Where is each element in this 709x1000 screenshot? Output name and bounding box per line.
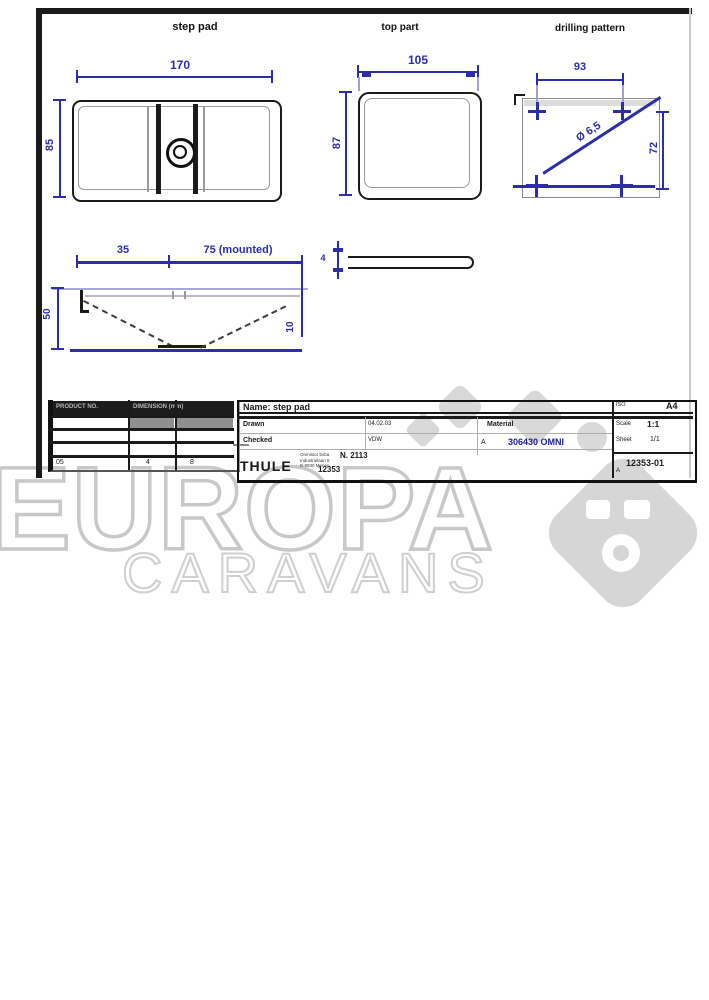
name-value: VDW	[368, 437, 382, 443]
dim-line	[301, 257, 303, 337]
dim-tick	[76, 70, 78, 83]
dim-line	[662, 112, 664, 190]
section-inner-line	[85, 295, 300, 297]
table-rule	[48, 428, 234, 431]
dim-line	[57, 288, 59, 350]
dim-tick	[339, 194, 352, 196]
dim-arrow	[466, 73, 475, 77]
view-top-label: top part	[355, 22, 445, 33]
section-hidden-line	[200, 305, 286, 348]
dim-height-main: 85	[44, 125, 56, 165]
title-divider-light	[365, 417, 366, 449]
dim-line	[337, 241, 339, 279]
dim-line	[70, 349, 302, 352]
section-tick	[184, 291, 186, 299]
parts-table-subcell	[130, 418, 174, 428]
dim-tick	[656, 188, 669, 190]
drawn-label: Drawn	[243, 421, 264, 428]
dim-line	[59, 100, 61, 198]
corner-mark	[514, 94, 516, 105]
dim-line	[358, 71, 478, 73]
part-number: 306430 OMNI	[508, 437, 564, 447]
dim-arrow	[362, 73, 371, 77]
dim-tick	[656, 111, 669, 113]
dim-tick	[271, 70, 273, 83]
table-rule	[48, 416, 234, 418]
dim-tick	[168, 255, 170, 268]
title-rule	[237, 412, 693, 414]
dim-line	[77, 261, 303, 264]
dim-arrow	[333, 248, 343, 252]
dim-section-right: 75 (mounted)	[178, 244, 298, 256]
part-inner-line	[364, 98, 470, 188]
groove-line	[203, 106, 205, 192]
drawing-page: EUROPA CARAVANS step pad 170	[0, 0, 709, 1000]
code-bottom: 12353	[318, 465, 340, 474]
ext-line	[358, 77, 360, 91]
dim-tick	[53, 196, 66, 198]
grommet-inner	[173, 145, 187, 159]
hole-cross	[536, 102, 539, 120]
title-block-name: Name: step pad	[243, 402, 310, 412]
table-rule	[48, 441, 234, 444]
dim-line	[513, 185, 655, 188]
title-rule	[237, 416, 693, 419]
part-prefix: A	[481, 439, 486, 446]
view-drill-label: drilling pattern	[538, 23, 642, 34]
dim-line	[77, 76, 273, 78]
checked-label: Checked	[243, 437, 272, 444]
sheet-border-left	[36, 8, 42, 478]
dim-thickness: 4	[316, 253, 330, 263]
groove-bar	[156, 104, 161, 194]
dim-tick	[51, 348, 64, 350]
dim-tick	[51, 287, 64, 289]
dim-tick	[53, 99, 66, 101]
title-divider-light	[477, 417, 478, 455]
drill-outline	[522, 98, 660, 198]
brand-logo: THULE	[240, 458, 292, 474]
standard-label: ISO	[616, 402, 625, 408]
scale-label: Scale	[616, 421, 631, 427]
title-rule	[612, 452, 693, 454]
section-edge	[80, 310, 89, 313]
sheet: step pad 170 85 top part 105 87	[0, 0, 709, 1000]
table-rule	[48, 455, 234, 458]
dim-tick	[339, 91, 352, 93]
dim-section-height: 50	[42, 296, 53, 332]
dim-arrow	[333, 268, 343, 272]
dim-height-drill: 72	[648, 128, 660, 168]
dim-line	[345, 92, 347, 196]
address-line: Omnistor bvba	[300, 452, 330, 458]
table-cell-value: 05	[56, 459, 64, 466]
table-divider	[175, 400, 177, 470]
table-cell-value: 4	[146, 459, 150, 466]
title-divider	[612, 400, 614, 478]
thin-profile-outline	[348, 256, 474, 269]
dim-tick	[76, 255, 78, 268]
dim-width-main: 170	[150, 58, 210, 72]
section-tick	[172, 291, 174, 299]
dim-line	[537, 79, 623, 81]
sheet-label: Sheet	[616, 437, 632, 443]
title-rule-light	[239, 433, 612, 434]
table-divider	[128, 400, 130, 470]
dim-width-drill: 93	[550, 61, 610, 73]
dim-height-top: 87	[331, 123, 343, 163]
title-rule-light	[239, 449, 612, 450]
view-main-label: step pad	[140, 21, 250, 33]
parts-table-subcell	[177, 418, 233, 428]
dim-width-top: 105	[378, 53, 458, 67]
section-top-line	[52, 288, 308, 290]
sheet-value: 1/1	[650, 436, 660, 443]
dim-section-depth: 10	[285, 311, 296, 343]
parts-table-header-left: PRODUCT NO.	[56, 404, 98, 410]
revision-value: A	[616, 468, 620, 474]
drill-top-band	[524, 100, 656, 106]
sheet-border-top	[36, 8, 692, 14]
groove-line	[147, 106, 149, 192]
material-label: Material	[487, 421, 513, 428]
section-hidden-line	[83, 300, 173, 347]
code-top: N. 2113	[340, 451, 368, 460]
drawing-number: 12353-01	[626, 458, 664, 468]
date-value: 04.02.03	[368, 421, 391, 427]
table-cell-value: 8	[190, 459, 194, 466]
scale-value: 1:1	[647, 419, 659, 429]
ext-line	[477, 77, 479, 91]
dim-section-left: 35	[103, 244, 143, 256]
paper-size: A4	[666, 401, 678, 411]
